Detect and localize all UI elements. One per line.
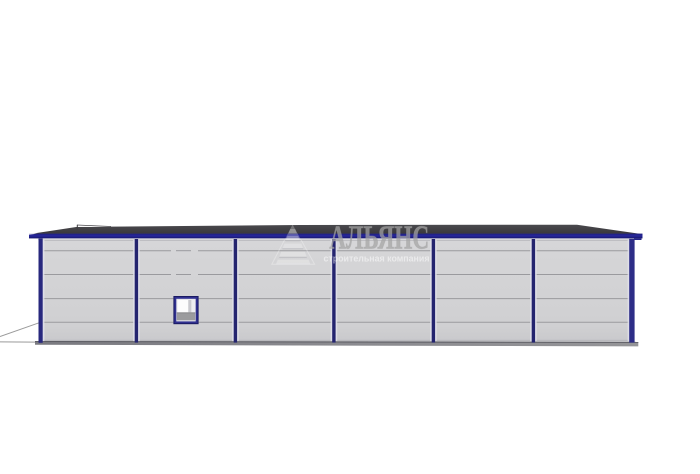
svg-text:АЛЬЯНС: АЛЬЯНС (329, 220, 429, 257)
svg-text:строительная компания: строительная компания (324, 254, 430, 264)
